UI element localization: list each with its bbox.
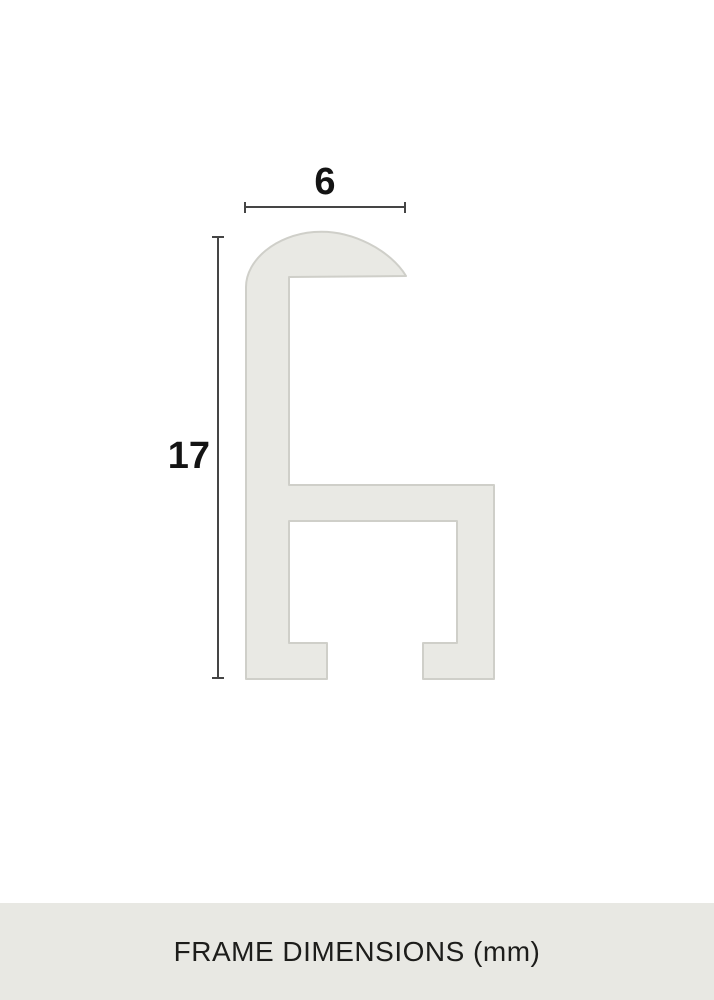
diagram-stage: 6 17 FRAME DIMENSIONS (mm) [0,0,714,1000]
height-dimension [212,237,224,678]
height-dimension-label: 17 [120,437,210,475]
caption-text: FRAME DIMENSIONS (mm) [174,936,541,968]
profile-diagram-svg [0,0,714,1000]
caption-bar: FRAME DIMENSIONS (mm) [0,903,714,1000]
width-dimension-label: 6 [314,163,335,201]
width-dimension [245,202,405,213]
frame-profile-shape [246,232,494,679]
